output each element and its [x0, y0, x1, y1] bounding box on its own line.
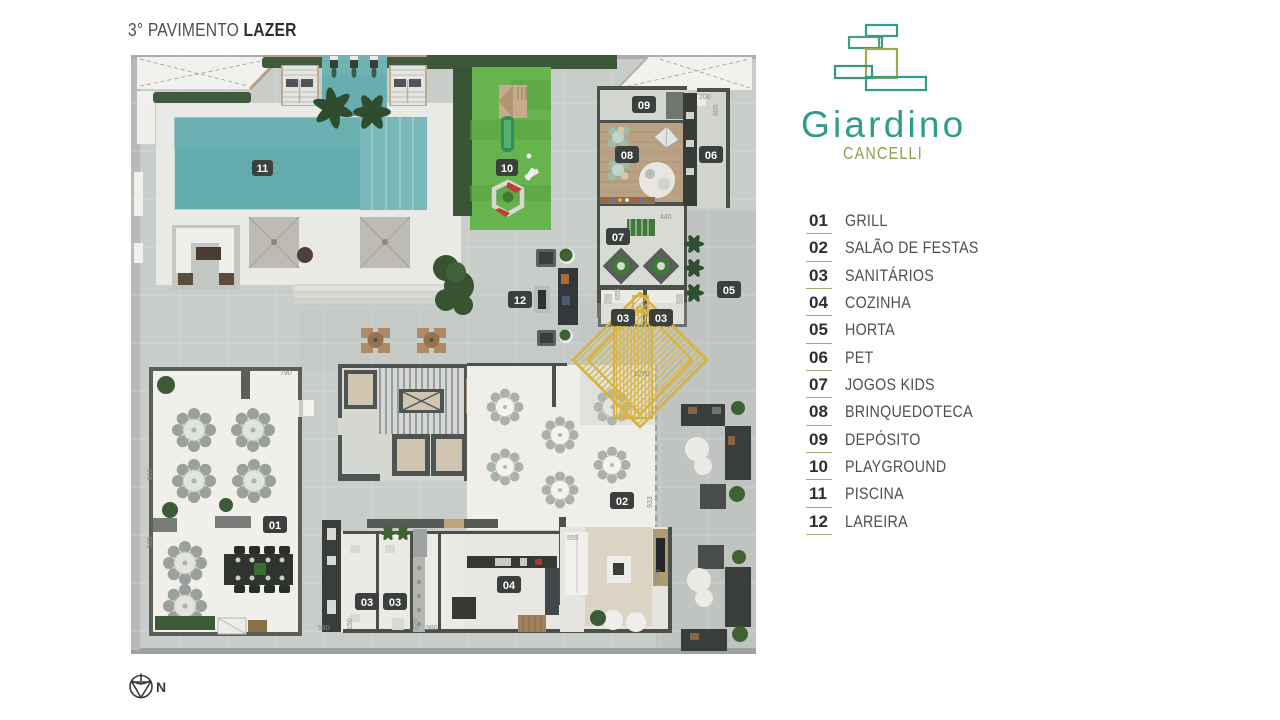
svg-text:07: 07 — [612, 232, 624, 244]
svg-text:440: 440 — [660, 214, 672, 221]
svg-text:03: 03 — [617, 313, 629, 325]
svg-text:655: 655 — [615, 288, 622, 300]
svg-text:150: 150 — [347, 618, 354, 630]
svg-text:1540: 1540 — [655, 569, 662, 585]
svg-text:03: 03 — [655, 313, 667, 325]
svg-text:06: 06 — [705, 150, 717, 162]
svg-text:933: 933 — [647, 496, 654, 508]
svg-text:02: 02 — [616, 496, 628, 508]
svg-text:01: 01 — [269, 520, 281, 532]
svg-text:03: 03 — [361, 597, 373, 609]
svg-text:570: 570 — [413, 618, 420, 630]
svg-text:1770: 1770 — [634, 371, 650, 378]
svg-text:200: 200 — [699, 94, 711, 101]
svg-text:08: 08 — [621, 150, 633, 162]
svg-text:05: 05 — [723, 285, 735, 297]
svg-text:11: 11 — [257, 163, 269, 175]
svg-text:605: 605 — [713, 104, 720, 116]
svg-text:10: 10 — [501, 163, 513, 175]
svg-text:12: 12 — [514, 295, 526, 307]
svg-text:980: 980 — [318, 625, 330, 632]
svg-text:810: 810 — [147, 468, 154, 480]
svg-text:790: 790 — [280, 370, 292, 377]
svg-text:CANCELLI: CANCELLI — [843, 144, 923, 164]
svg-text:525: 525 — [147, 536, 154, 548]
svg-text:03: 03 — [389, 597, 401, 609]
svg-text:04: 04 — [503, 580, 516, 592]
svg-text:09: 09 — [638, 100, 650, 112]
svg-text:N: N — [156, 679, 166, 695]
svg-text:Giardino: Giardino — [801, 104, 966, 145]
svg-text:980: 980 — [426, 625, 438, 632]
svg-text:555: 555 — [567, 535, 579, 542]
